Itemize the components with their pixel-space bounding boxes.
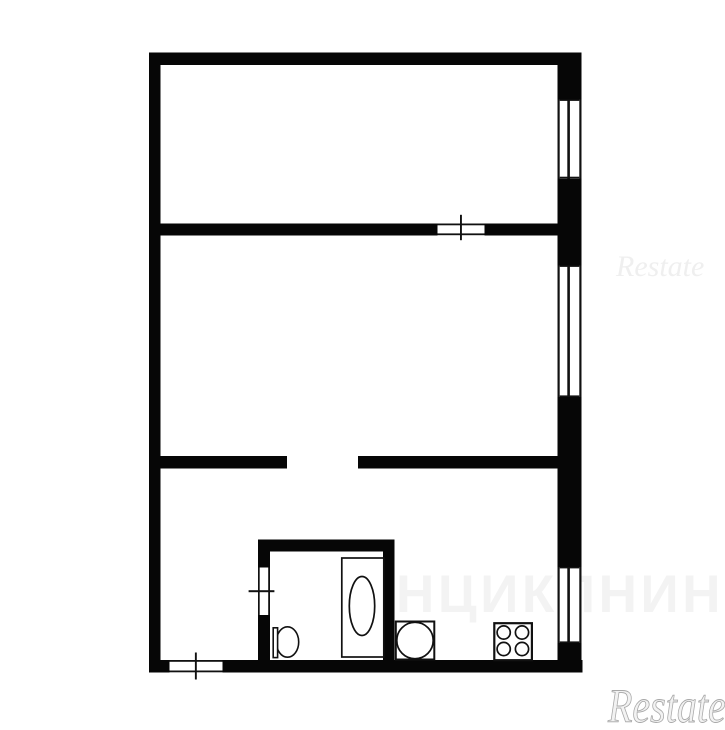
svg-text:Restate: Restate [615,250,704,283]
svg-text:Restate: Restate [607,680,725,725]
